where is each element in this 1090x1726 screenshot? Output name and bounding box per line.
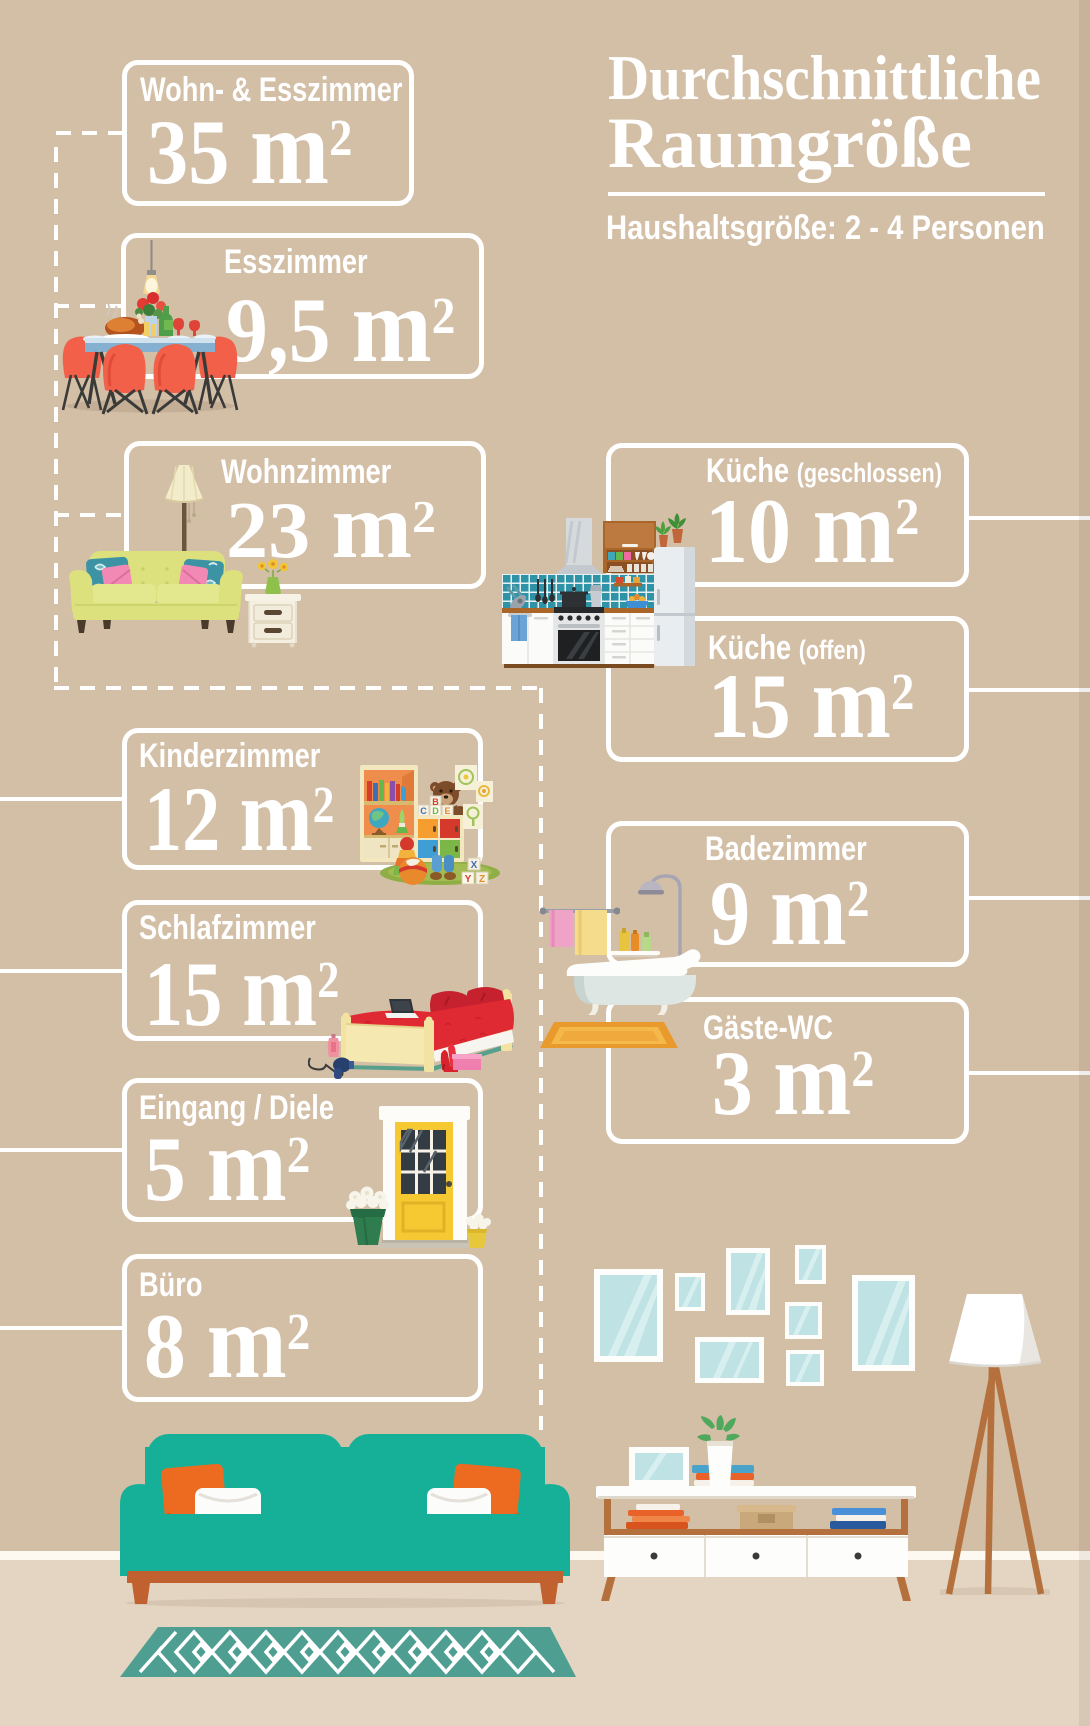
svg-text:X: X (471, 860, 478, 871)
svg-text:Y: Y (465, 874, 472, 885)
svg-text:Z: Z (479, 874, 485, 885)
